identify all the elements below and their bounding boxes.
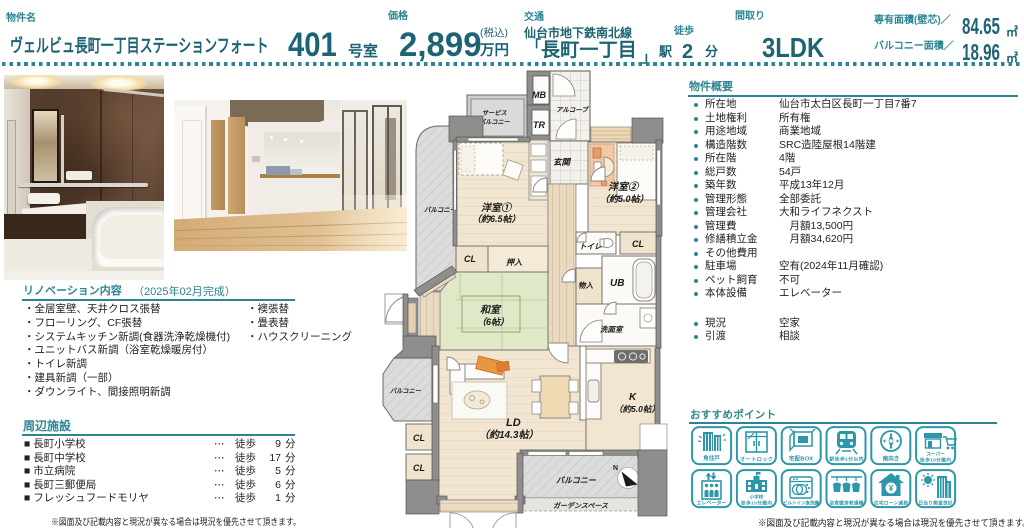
svg-text:小学校: 小学校 — [750, 494, 764, 501]
svg-text:トイレ: トイレ — [579, 242, 602, 251]
svg-text:MB: MB — [532, 90, 546, 100]
svg-text:物入: 物入 — [578, 281, 593, 290]
svg-text:南向き: 南向き — [883, 455, 900, 463]
svg-text:宅配BOX: 宅配BOX — [789, 455, 813, 463]
svg-text:徒歩10分圏内: 徒歩10分圏内 — [919, 457, 951, 464]
svg-text:（約5.0帖）: （約5.0帖） — [600, 194, 649, 204]
svg-text:（6帖）: （6帖） — [477, 317, 509, 327]
svg-text:日当り眺望良好: 日当り眺望良好 — [919, 500, 953, 507]
svg-text:和室: 和室 — [480, 304, 502, 316]
svg-text:エレベーター: エレベーター — [696, 500, 726, 507]
svg-text:駅徒歩1分以内: 駅徒歩1分以内 — [830, 456, 864, 463]
svg-text:（約6.5帖）: （約6.5帖） — [472, 214, 521, 224]
svg-text:アルコーブ: アルコーブ — [556, 106, 589, 114]
svg-text:N: N — [613, 465, 618, 472]
svg-text:オートロック: オートロック — [740, 455, 773, 463]
svg-text:UB: UB — [610, 278, 624, 289]
svg-text:バルコニー: バルコニー — [390, 387, 422, 395]
svg-text:CL: CL — [464, 254, 476, 264]
svg-text:CL: CL — [632, 239, 644, 249]
svg-text:TR: TR — [533, 120, 545, 130]
svg-text:徒歩10分圏内: 徒歩10分圏内 — [740, 500, 772, 507]
svg-text:玄関: 玄関 — [553, 157, 572, 167]
svg-text:浴室暖房乾燥機: 浴室暖房乾燥機 — [830, 500, 864, 507]
svg-text:LD: LD — [506, 417, 521, 429]
svg-text:洋室①: 洋室① — [481, 202, 513, 214]
svg-text:バルコニー: バルコニー — [479, 118, 511, 126]
svg-text:洋室②: 洋室② — [608, 181, 640, 193]
svg-text:スーパー: スーパー — [926, 451, 945, 458]
svg-text:（約14.3帖）: （約14.3帖） — [479, 429, 538, 441]
svg-text:角住戸: 角住戸 — [703, 454, 720, 462]
svg-text:K: K — [629, 392, 637, 403]
svg-text:住宅ローン減税: 住宅ローン減税 — [874, 500, 908, 507]
svg-text:押入: 押入 — [506, 258, 522, 267]
svg-text:バルコニー: バルコニー — [556, 476, 597, 485]
svg-text:CL: CL — [413, 463, 425, 473]
svg-text:ビルトイン食洗機: ビルトイン食洗機 — [783, 500, 819, 507]
svg-text:洗面室: 洗面室 — [600, 325, 624, 334]
svg-text:ガーデンスペース: ガーデンスペース — [553, 501, 608, 510]
svg-text:CL: CL — [413, 433, 425, 443]
svg-text:¥: ¥ — [889, 484, 894, 493]
svg-text:（約5.0帖）: （約5.0帖） — [614, 404, 660, 414]
svg-text:バルコニー: バルコニー — [424, 206, 457, 214]
svg-text:サービス: サービス — [482, 109, 508, 117]
